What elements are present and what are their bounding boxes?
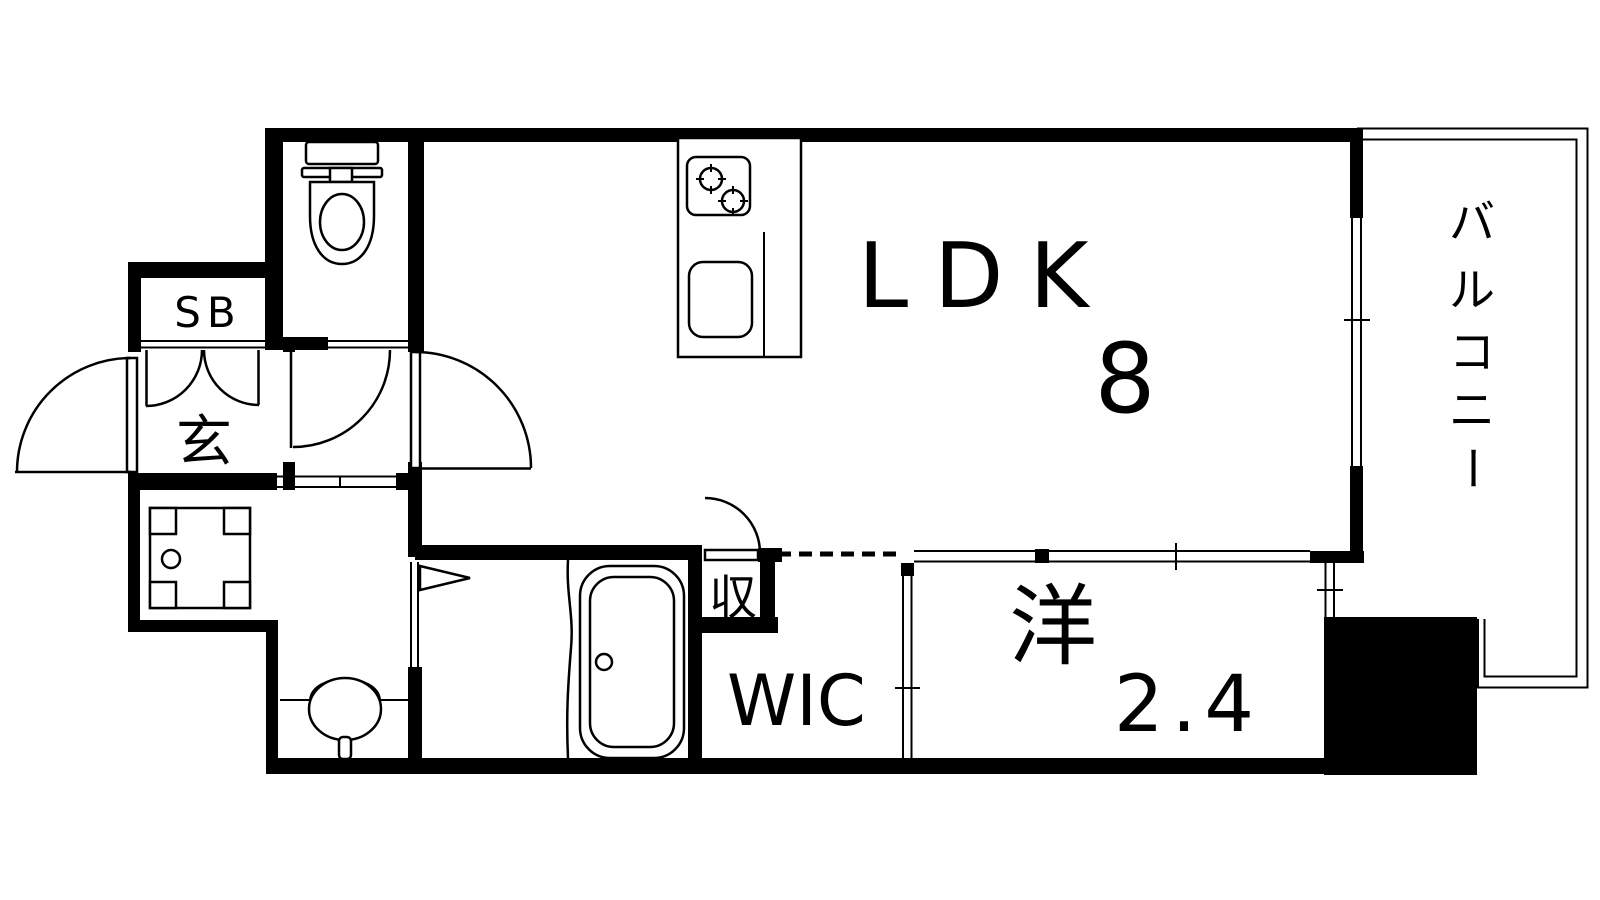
kitchen-counter (678, 138, 801, 357)
ldk-balcony-window (1344, 218, 1370, 466)
storage-door (705, 498, 760, 560)
svg-text:ー: ー (1445, 445, 1499, 491)
storage-label: 収 (709, 570, 757, 626)
washroom-folding-door (411, 562, 470, 667)
wic-label: WIC (727, 660, 866, 742)
ldk-western-sliding-door (914, 543, 1310, 570)
svg-text:ル: ル (1449, 263, 1495, 317)
svg-text:コ: コ (1449, 325, 1495, 379)
western-room-window (1317, 563, 1343, 617)
washing-machine-pan-icon (150, 508, 250, 608)
shoebox-double-doors (146, 350, 259, 406)
toilet-icon (302, 142, 382, 264)
shoebox-open-edge (140, 341, 268, 348)
shoebox-label: SB (174, 288, 241, 337)
washroom-sliding-door (277, 477, 400, 488)
ldk-label: LDK (858, 224, 1114, 329)
washbasin-icon (280, 678, 409, 759)
toilet-door-opening (327, 341, 408, 348)
stove-icon (687, 157, 750, 216)
front-door (15, 358, 137, 472)
bathtub-icon (580, 566, 684, 758)
svg-text:バ: バ (1449, 195, 1495, 249)
hall-ldk-door (411, 352, 531, 469)
bathroom-door (567, 560, 571, 758)
entrance-label: 玄 (176, 410, 232, 475)
svg-text:ニ: ニ (1449, 383, 1495, 437)
wic-western-divider (895, 575, 920, 758)
kitchen-sink-icon (689, 262, 752, 337)
western-room-label: 洋 (1009, 575, 1097, 678)
floor-plan: LDK 8 洋 2.4 WIC 収 玄 SB バ ル コ ニ ー (0, 0, 1600, 900)
western-room-tatami: 2.4 (1114, 660, 1262, 750)
ldk-tatami: 8 (1094, 323, 1155, 435)
toilet-door (291, 350, 390, 448)
balcony-label: バ ル コ ニ ー (1445, 195, 1499, 491)
